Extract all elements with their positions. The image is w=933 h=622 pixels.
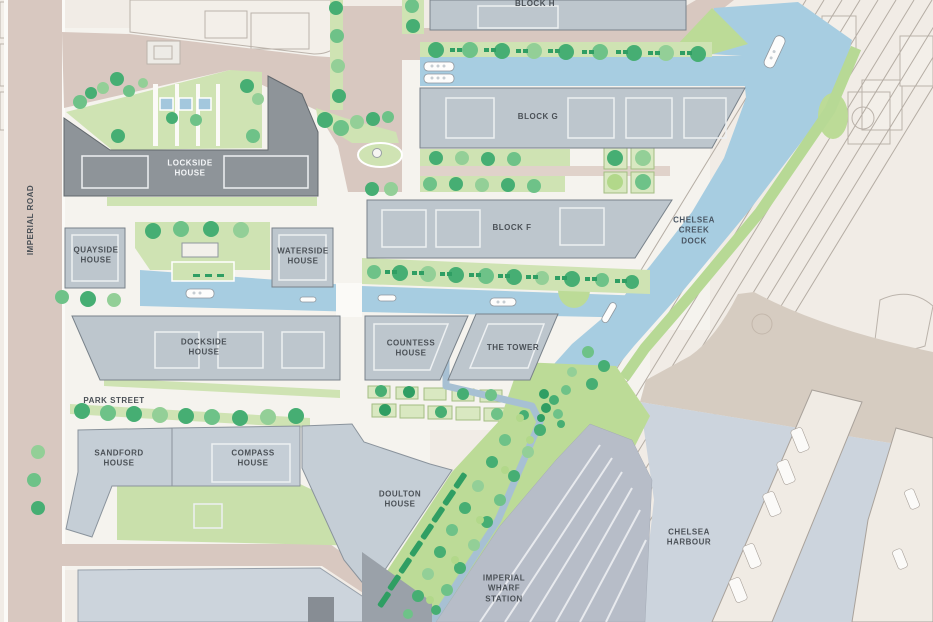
label-quayside-house: QUAYSIDEHOUSE	[73, 246, 118, 267]
label-compass-house: COMPASSHOUSE	[231, 449, 274, 470]
label-block-f: BLOCK F	[492, 223, 531, 233]
label-imperial-wharf-station: IMPERIALWHARFSTATION	[483, 573, 525, 604]
label-doulton-house: DOULTONHOUSE	[379, 490, 421, 511]
boat-icon	[424, 62, 454, 71]
label-chelsea-harbour: CHELSEAHARBOUR	[667, 528, 711, 549]
boat-icon	[378, 295, 396, 301]
label-park-street: PARK STREET	[83, 396, 144, 406]
bus-shelter	[147, 41, 180, 64]
sculpture-icon	[373, 149, 382, 158]
label-the-tower: THE TOWER	[487, 343, 539, 353]
label-waterside-house: WATERSIDEHOUSE	[277, 247, 328, 268]
map-canvas	[0, 0, 933, 622]
site-map: IMPERIAL ROAD BLOCK H BLOCK G BLOCK F CH…	[0, 0, 933, 622]
building-block-g[interactable]	[420, 88, 745, 148]
label-block-h: BLOCK H	[515, 0, 555, 9]
label-imperial-road: IMPERIAL ROAD	[26, 185, 36, 255]
label-dockside-house: DOCKSIDEHOUSE	[181, 338, 227, 359]
canal-bridge[interactable]	[336, 283, 362, 317]
label-countess-house: COUNTESSHOUSE	[387, 339, 435, 360]
label-chelsea-creek-dock: CHELSEACREEKDOCK	[673, 215, 715, 246]
boat-icon	[186, 289, 214, 298]
label-lockside-house: LOCKSIDEHOUSE	[167, 159, 212, 180]
garden-pool	[160, 98, 173, 110]
boat-icon	[424, 74, 454, 83]
imperial-road[interactable]	[8, 0, 62, 622]
boat-icon	[300, 297, 316, 302]
canal-deck	[172, 262, 234, 281]
boat-icon	[490, 298, 516, 306]
garden-pavilion	[182, 243, 218, 257]
label-block-g: BLOCK G	[518, 112, 558, 122]
label-sandford-house: SANDFORDHOUSE	[94, 449, 143, 470]
